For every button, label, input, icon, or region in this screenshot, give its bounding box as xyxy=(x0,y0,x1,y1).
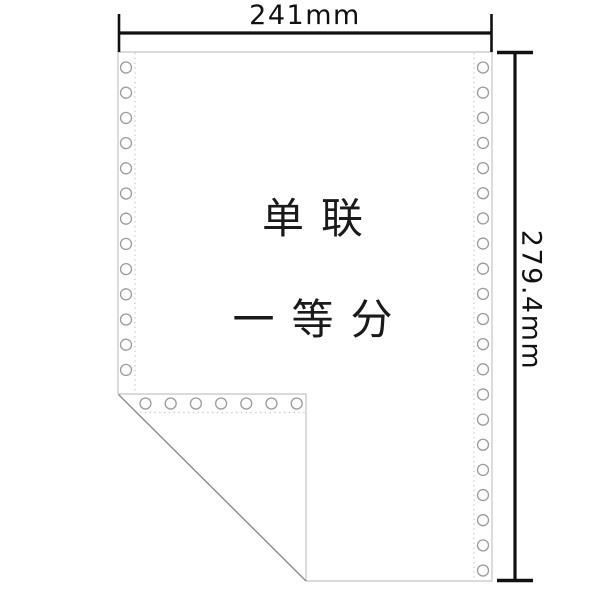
tractor-hole xyxy=(190,398,201,409)
tractor-hole xyxy=(140,398,151,409)
tractor-hole xyxy=(121,264,132,275)
tractor-hole xyxy=(121,364,132,375)
tractor-hole xyxy=(165,398,176,409)
tractor-hole xyxy=(478,515,489,526)
tractor-hole xyxy=(478,565,489,576)
tractor-hole xyxy=(478,364,489,375)
width-dimension-label: 241mm xyxy=(118,1,492,31)
tractor-hole xyxy=(478,490,489,501)
paper-division-label: 一等分 xyxy=(120,296,505,346)
tractor-hole xyxy=(266,398,277,409)
tractor-hole xyxy=(121,138,132,149)
tractor-hole xyxy=(478,464,489,475)
printer-paper-dimension-diagram: 241mm 279.4mm 单联 一等分 xyxy=(0,0,600,600)
paper-ply-label: 单联 xyxy=(120,195,505,245)
tractor-hole xyxy=(478,439,489,450)
tractor-hole xyxy=(241,398,252,409)
tractor-hole xyxy=(121,112,132,123)
tractor-hole xyxy=(478,389,489,400)
tractor-hole xyxy=(478,540,489,551)
tractor-hole xyxy=(216,398,227,409)
tractor-hole xyxy=(478,62,489,73)
tractor-hole xyxy=(478,414,489,425)
height-dimension-label: 279.4mm xyxy=(516,230,547,370)
tractor-hole xyxy=(121,163,132,174)
tractor-hole xyxy=(478,163,489,174)
tractor-hole xyxy=(121,62,132,73)
tractor-hole xyxy=(478,87,489,98)
tractor-hole xyxy=(121,87,132,98)
tractor-hole xyxy=(478,263,489,274)
tractor-hole xyxy=(291,398,302,409)
tractor-hole xyxy=(478,137,489,148)
tractor-hole xyxy=(478,112,489,123)
